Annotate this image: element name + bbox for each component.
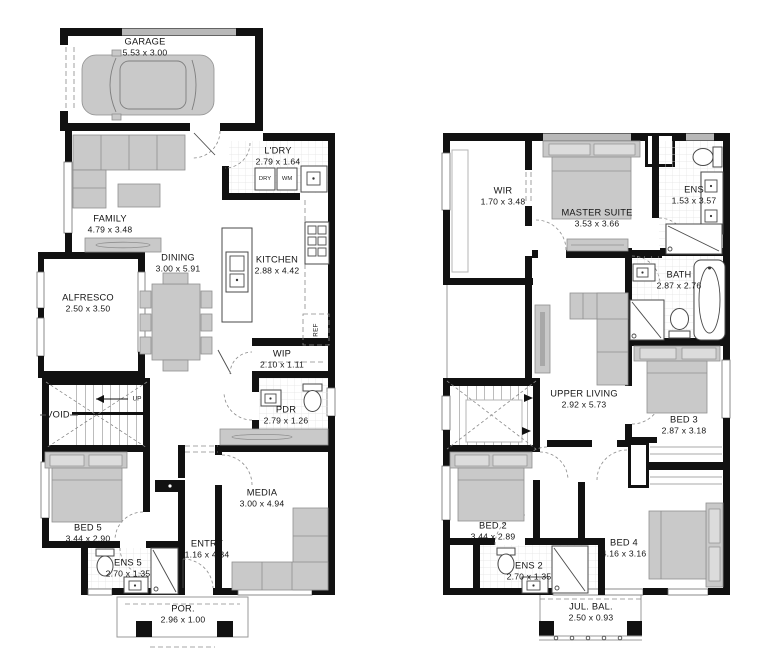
room-label-dining: DINING3.00 x 5.91 (156, 252, 201, 273)
room-label-bed3: BED 32.87 x 3.18 (662, 414, 707, 435)
room-label-ens2: ENS 22.70 x 1.35 (507, 560, 552, 581)
room-label-media: MEDIA3.00 x 4.94 (240, 487, 285, 508)
room-label-upper-living: UPPER LIVING2.92 x 5.73 (550, 388, 618, 409)
room-label-alfresco: ALFRESCO2.50 x 3.50 (62, 292, 114, 313)
room-label-void: VOID (46, 409, 70, 420)
room-label-master-suite: MASTER SUITE3.53 x 3.66 (561, 207, 632, 228)
room-label-ldry: L'DRY2.79 x 1.64 (256, 145, 301, 166)
room-label-kitchen: KITCHEN2.88 x 4.42 (255, 254, 300, 275)
room-label-bed2: BED 23.44 x 2.89 (471, 520, 516, 541)
room-label-ens: ENS1.53 x 3.57 (672, 184, 717, 205)
washer-label: WM (282, 176, 292, 182)
room-label-entry: ENTRY1.16 x 4.34 (185, 538, 230, 559)
room-label-pdr: PDR2.79 x 1.26 (264, 404, 309, 425)
upper-floor-stairs (447, 381, 536, 449)
room-label-family: FAMILY4.79 x 3.48 (88, 213, 133, 234)
room-label-bed4: BED 44.16 x 3.16 (602, 537, 647, 558)
floorplan-canvas: GARAGE5.53 x 3.00 L'DRY2.79 x 1.64 FAMIL… (0, 0, 768, 665)
room-label-por: POR.2.96 x 1.00 (161, 603, 206, 624)
room-label-ens5: ENS 52.70 x 1.35 (106, 557, 151, 578)
dryer-label: DRY (259, 176, 271, 182)
fridge-label: REF (313, 323, 320, 337)
room-label-bed5: BED 53.44 x 2.90 (66, 522, 111, 543)
stairs-up-label: UP (132, 396, 141, 403)
room-label-wip: WIP2.10 x 1.11 (260, 348, 304, 369)
garage-car (82, 50, 214, 120)
room-label-wir: WIR1.70 x 3.48 (481, 185, 526, 206)
room-label-garage: GARAGE5.53 x 3.00 (123, 36, 168, 57)
room-label-bath: BATH2.87 x 2.76 (657, 269, 702, 290)
room-label-jul-bal: JUL. BAL.2.50 x 0.93 (569, 601, 614, 622)
